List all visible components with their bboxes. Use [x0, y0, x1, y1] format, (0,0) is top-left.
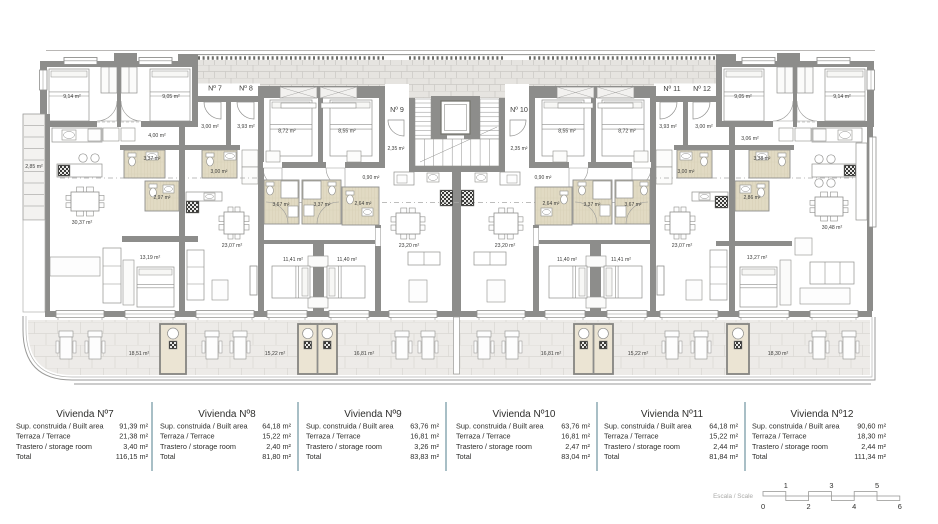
- svg-text:3,37 m²: 3,37 m²: [584, 202, 601, 208]
- svg-text:Sup. construida / Built area: Sup. construida / Built area: [16, 421, 105, 430]
- svg-text:6: 6: [898, 502, 902, 511]
- svg-text:3,00 m²: 3,00 m²: [211, 169, 228, 175]
- svg-text:Total: Total: [160, 452, 176, 461]
- svg-text:Total: Total: [306, 452, 322, 461]
- svg-text:13,27 m²: 13,27 m²: [747, 255, 768, 261]
- svg-text:Terraza / Terrace: Terraza / Terrace: [752, 432, 807, 441]
- svg-text:11,40 m²: 11,40 m²: [557, 257, 577, 263]
- svg-text:Total: Total: [456, 452, 472, 461]
- svg-text:Sup. construida / Built area: Sup. construida / Built area: [604, 421, 693, 430]
- svg-text:Total: Total: [16, 452, 32, 461]
- svg-text:4,00 m²: 4,00 m²: [148, 133, 166, 139]
- svg-text:Total: Total: [604, 452, 620, 461]
- svg-text:Vivienda Nº12: Vivienda Nº12: [791, 409, 854, 420]
- svg-text:3,06 m²: 3,06 m²: [741, 136, 759, 142]
- svg-text:1: 1: [784, 481, 788, 490]
- svg-text:Terraza / Terrace: Terraza / Terrace: [160, 432, 215, 441]
- svg-text:2,85 m²: 2,85 m²: [25, 164, 43, 170]
- svg-text:81,84 m²: 81,84 m²: [709, 452, 738, 461]
- svg-text:2,35 m²: 2,35 m²: [388, 146, 405, 152]
- svg-text:64,18 m²: 64,18 m²: [262, 421, 291, 430]
- svg-text:2,97 m²: 2,97 m²: [154, 195, 171, 201]
- svg-text:9,05 m²: 9,05 m²: [162, 94, 180, 100]
- svg-text:9,14 m²: 9,14 m²: [63, 94, 81, 100]
- svg-text:2,35 m²: 2,35 m²: [511, 146, 528, 152]
- svg-text:Trastero / storage room: Trastero / storage room: [306, 442, 382, 451]
- svg-text:23,07 m²: 23,07 m²: [222, 243, 243, 249]
- svg-text:Nº 10: Nº 10: [510, 105, 528, 114]
- svg-text:5: 5: [875, 481, 879, 490]
- svg-text:30,48 m²: 30,48 m²: [822, 225, 843, 231]
- svg-text:21,38 m²: 21,38 m²: [119, 432, 148, 441]
- svg-text:3,26 m²: 3,26 m²: [414, 442, 439, 451]
- svg-text:Vivienda Nº8: Vivienda Nº8: [198, 409, 256, 420]
- svg-text:Sup. construida / Built area: Sup. construida / Built area: [160, 421, 249, 430]
- svg-text:2,44 m²: 2,44 m²: [713, 442, 738, 451]
- svg-text:3,93 m²: 3,93 m²: [237, 124, 255, 130]
- svg-text:Terraza / Terrace: Terraza / Terrace: [306, 432, 361, 441]
- svg-text:9,05 m²: 9,05 m²: [734, 94, 752, 100]
- svg-text:Nº 12: Nº 12: [693, 84, 711, 93]
- svg-text:81,80 m²: 81,80 m²: [262, 452, 291, 461]
- svg-text:Sup. construida / Built area: Sup. construida / Built area: [456, 421, 545, 430]
- svg-text:2,44 m²: 2,44 m²: [861, 442, 886, 451]
- svg-text:91,39 m²: 91,39 m²: [119, 421, 148, 430]
- svg-text:18,30 m²: 18,30 m²: [768, 351, 789, 357]
- svg-text:2,86 m²: 2,86 m²: [744, 195, 761, 201]
- svg-text:2,47 m²: 2,47 m²: [565, 442, 590, 451]
- svg-text:Terraza / Terrace: Terraza / Terrace: [604, 432, 659, 441]
- svg-text:Terraza / Terrace: Terraza / Terrace: [456, 432, 511, 441]
- svg-text:13,19 m²: 13,19 m²: [140, 255, 161, 261]
- svg-text:11,41 m²: 11,41 m²: [611, 257, 631, 263]
- svg-text:3,67 m²: 3,67 m²: [273, 202, 290, 208]
- svg-text:8,55 m²: 8,55 m²: [558, 129, 576, 135]
- svg-text:11,40 m²: 11,40 m²: [337, 257, 357, 263]
- svg-text:Trastero / storage room: Trastero / storage room: [160, 442, 236, 451]
- svg-text:90,60 m²: 90,60 m²: [857, 421, 886, 430]
- svg-text:3,37 m²: 3,37 m²: [314, 202, 331, 208]
- svg-text:2,64 m²: 2,64 m²: [543, 201, 560, 207]
- svg-text:Nº 9: Nº 9: [390, 105, 404, 114]
- svg-text:3,67 m²: 3,67 m²: [625, 202, 642, 208]
- svg-text:0,90 m²: 0,90 m²: [363, 175, 380, 181]
- svg-text:2,40 m²: 2,40 m²: [266, 442, 291, 451]
- svg-text:8,72 m²: 8,72 m²: [618, 129, 636, 135]
- svg-text:116,15 m²: 116,15 m²: [116, 452, 149, 461]
- svg-text:83,04 m²: 83,04 m²: [561, 452, 590, 461]
- svg-text:Vivienda Nº10: Vivienda Nº10: [493, 409, 556, 420]
- svg-text:64,18 m²: 64,18 m²: [709, 421, 738, 430]
- svg-text:63,76 m²: 63,76 m²: [410, 421, 439, 430]
- svg-text:3,40 m²: 3,40 m²: [123, 442, 148, 451]
- svg-text:Sup. construida / Built area: Sup. construida / Built area: [752, 421, 841, 430]
- svg-text:Trastero / storage room: Trastero / storage room: [604, 442, 680, 451]
- svg-text:15,22 m²: 15,22 m²: [262, 432, 291, 441]
- svg-text:23,20 m²: 23,20 m²: [399, 243, 420, 249]
- svg-text:30,37 m²: 30,37 m²: [72, 220, 93, 226]
- svg-text:8,55 m²: 8,55 m²: [338, 129, 356, 135]
- svg-text:Nº 7: Nº 7: [208, 84, 222, 93]
- svg-text:2: 2: [807, 502, 811, 511]
- svg-text:3,93 m²: 3,93 m²: [659, 124, 677, 130]
- svg-text:16,81 m²: 16,81 m²: [541, 351, 562, 357]
- svg-text:Escala / Scale: Escala / Scale: [713, 493, 753, 500]
- svg-text:16,81 m²: 16,81 m²: [561, 432, 590, 441]
- svg-text:23,20 m²: 23,20 m²: [495, 243, 516, 249]
- svg-text:Vivienda Nº7: Vivienda Nº7: [56, 409, 114, 420]
- svg-text:18,30 m²: 18,30 m²: [857, 432, 886, 441]
- svg-text:Terraza / Terrace: Terraza / Terrace: [16, 432, 71, 441]
- svg-text:Vivienda Nº11: Vivienda Nº11: [641, 409, 704, 420]
- svg-text:Total: Total: [752, 452, 768, 461]
- svg-text:83,83 m²: 83,83 m²: [410, 452, 439, 461]
- svg-text:4: 4: [852, 502, 856, 511]
- svg-text:Trastero / storage room: Trastero / storage room: [456, 442, 532, 451]
- svg-text:15,22 m²: 15,22 m²: [265, 351, 286, 357]
- svg-text:0: 0: [761, 502, 765, 511]
- svg-text:111,34 m²: 111,34 m²: [854, 452, 886, 461]
- svg-text:16,81 m²: 16,81 m²: [410, 432, 439, 441]
- svg-text:23,07 m²: 23,07 m²: [672, 243, 693, 249]
- svg-text:3,38 m²: 3,38 m²: [754, 156, 771, 162]
- svg-text:16,81 m²: 16,81 m²: [354, 351, 375, 357]
- svg-text:Vivienda Nº9: Vivienda Nº9: [344, 409, 402, 420]
- svg-text:Nº 11: Nº 11: [663, 84, 680, 93]
- svg-text:63,76 m²: 63,76 m²: [561, 421, 590, 430]
- svg-text:3,37 m²: 3,37 m²: [144, 156, 161, 162]
- svg-text:8,72 m²: 8,72 m²: [278, 129, 296, 135]
- svg-text:18,51 m²: 18,51 m²: [129, 351, 150, 357]
- svg-text:3,00 m²: 3,00 m²: [201, 124, 219, 130]
- svg-text:15,22 m²: 15,22 m²: [709, 432, 738, 441]
- svg-text:Nº 8: Nº 8: [239, 84, 253, 93]
- svg-text:15,22 m²: 15,22 m²: [628, 351, 649, 357]
- svg-text:3,00 m²: 3,00 m²: [695, 124, 713, 130]
- svg-text:11,41 m²: 11,41 m²: [283, 257, 303, 263]
- svg-text:0,90 m²: 0,90 m²: [535, 175, 552, 181]
- svg-text:Trastero / storage room: Trastero / storage room: [752, 442, 828, 451]
- svg-text:Trastero / storage room: Trastero / storage room: [16, 442, 92, 451]
- svg-text:3,00 m²: 3,00 m²: [678, 169, 695, 175]
- svg-text:9,14 m²: 9,14 m²: [833, 94, 851, 100]
- svg-text:3: 3: [829, 481, 833, 490]
- svg-text:2,64 m²: 2,64 m²: [355, 201, 372, 207]
- svg-text:Sup. construida / Built area: Sup. construida / Built area: [306, 421, 395, 430]
